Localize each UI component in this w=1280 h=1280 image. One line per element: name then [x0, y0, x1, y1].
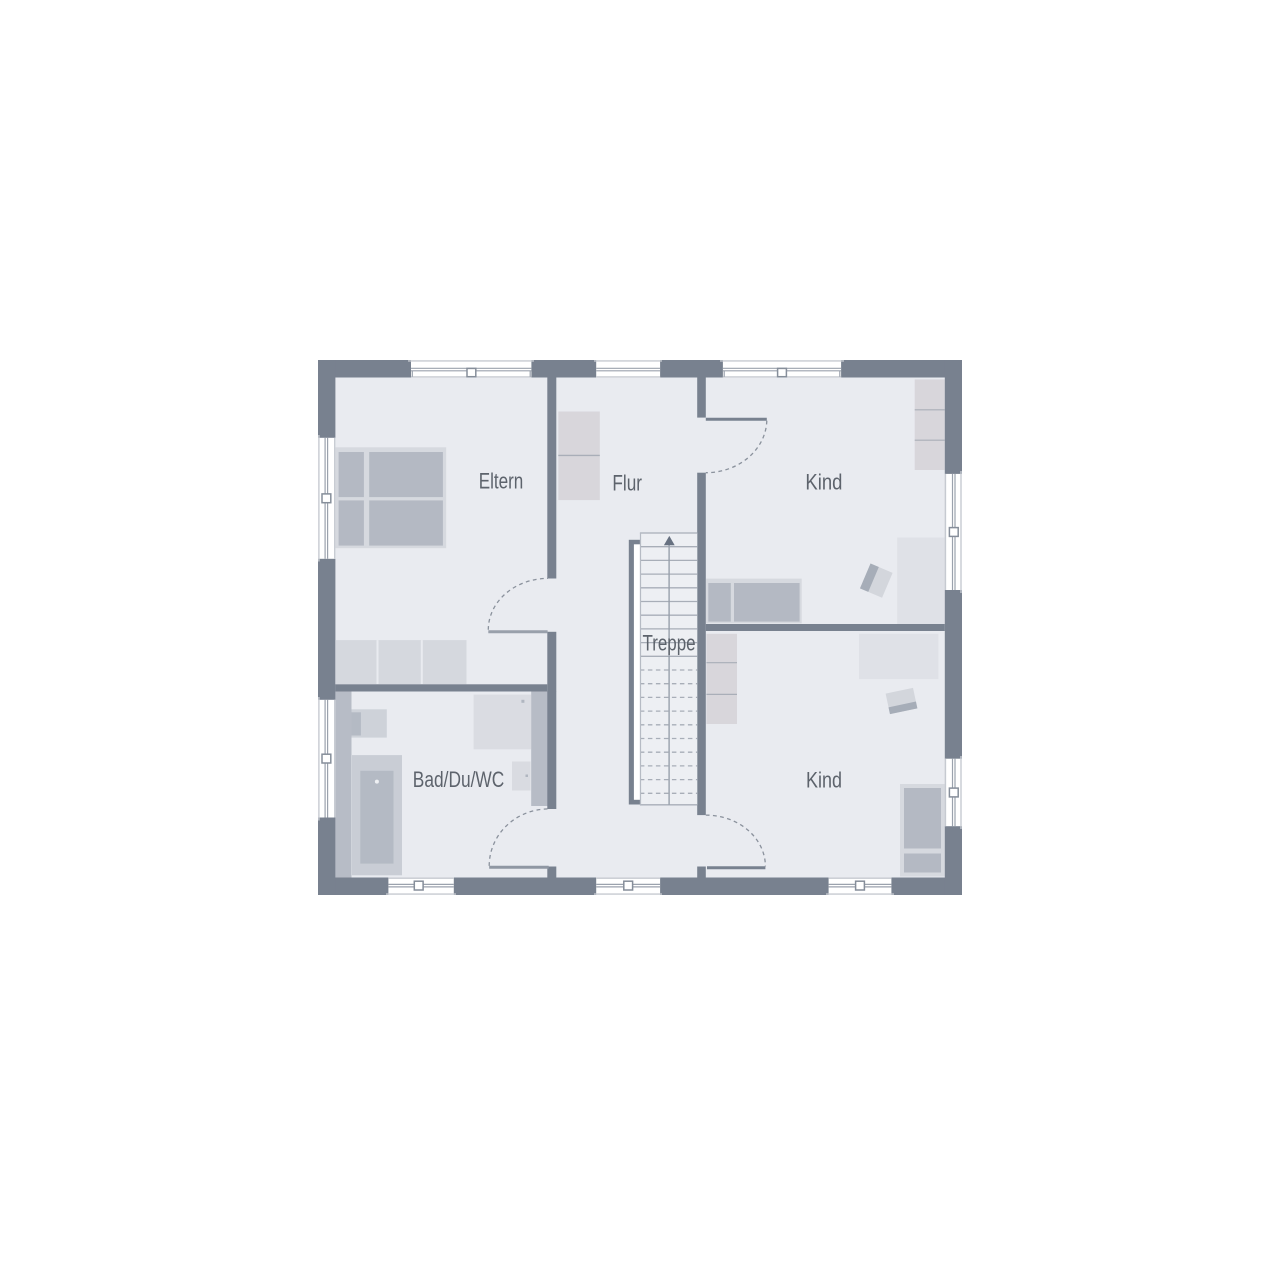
svg-text:Eltern: Eltern — [479, 469, 524, 494]
svg-text:Kind: Kind — [805, 470, 842, 495]
svg-text:Flur: Flur — [612, 470, 642, 495]
svg-text:Treppe: Treppe — [643, 630, 696, 655]
svg-text:Bad/Du/WC: Bad/Du/WC — [413, 767, 505, 792]
svg-text:Kind: Kind — [806, 767, 842, 792]
